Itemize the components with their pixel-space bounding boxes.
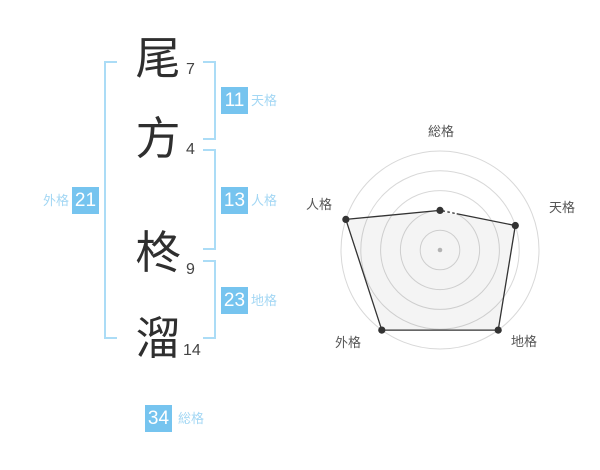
name-char-4: 溜 <box>130 314 186 364</box>
radar-axis-label-tenkaku: 天格 <box>549 201 575 215</box>
jinkaku-label: 人格 <box>251 194 277 208</box>
radar-axis-label-chikaku: 地格 <box>511 335 537 349</box>
radar-axis-label-soukaku: 総格 <box>428 125 454 139</box>
radar-axis-label-jinkaku: 人格 <box>306 198 332 212</box>
name-char-1: 尾 <box>130 34 186 84</box>
gaikaku-value-badge: 21 <box>72 187 99 214</box>
soukaku-value-badge: 34 <box>145 405 172 432</box>
stroke-count-3: 9 <box>186 262 195 278</box>
gaikaku-label: 外格 <box>36 194 69 208</box>
tenkaku-bracket <box>203 61 216 140</box>
gaikaku-bracket <box>104 61 117 339</box>
jinkaku-value-badge: 13 <box>221 187 248 214</box>
chikaku-value-badge: 23 <box>221 287 248 314</box>
name-char-2: 方 <box>130 114 186 164</box>
soukaku-label: 総格 <box>178 412 204 426</box>
chikaku-label: 地格 <box>251 294 277 308</box>
chikaku-bracket <box>203 260 216 339</box>
stroke-count-2: 4 <box>186 142 195 158</box>
radar-axis-label-gaikaku: 外格 <box>335 336 361 350</box>
jinkaku-bracket <box>203 149 216 250</box>
tenkaku-value-badge: 11 <box>221 87 248 114</box>
tenkaku-label: 天格 <box>251 94 277 108</box>
name-char-3: 柊 <box>130 228 186 278</box>
name-fortune-page: 尾 方 柊 溜 7 4 9 14 11 13 23 21 34 天格 人格 地格… <box>0 0 600 470</box>
stroke-count-1: 7 <box>186 62 195 78</box>
stroke-count-4: 14 <box>183 343 201 359</box>
radar-chart <box>330 140 550 360</box>
